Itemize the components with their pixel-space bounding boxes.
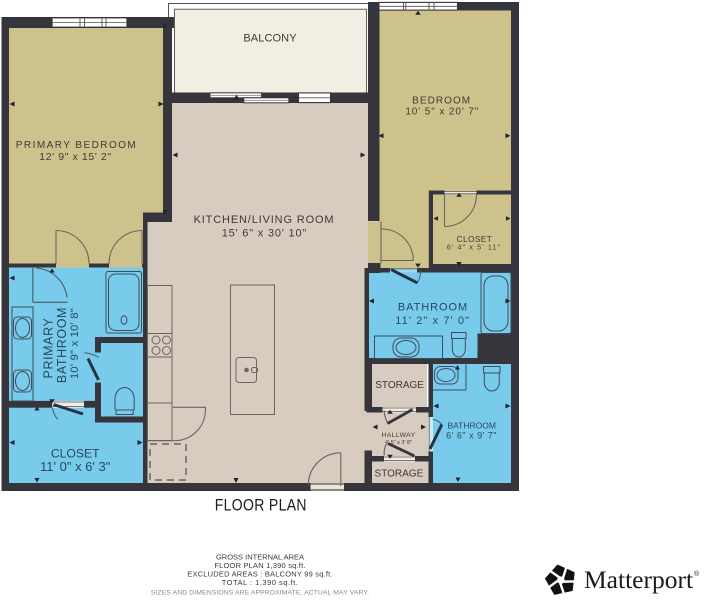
- svg-text:HALLWAY: HALLWAY: [381, 432, 415, 439]
- svg-text:BATHROOM: BATHROOM: [55, 307, 69, 383]
- svg-text:®: ®: [694, 570, 700, 578]
- svg-text:11' 0" x 6' 3": 11' 0" x 6' 3": [40, 459, 111, 474]
- svg-text:PRIMARY: PRIMARY: [42, 317, 56, 378]
- svg-text:6' 4" x 5' 11": 6' 4" x 5' 11": [447, 242, 501, 251]
- svg-text:PRIMARY BEDROOM: PRIMARY BEDROOM: [16, 140, 137, 151]
- svg-text:TOTAL : 1,390 sq.ft.: TOTAL : 1,390 sq.ft.: [222, 578, 299, 587]
- svg-text:10' 5" x 20' 7": 10' 5" x 20' 7": [405, 107, 479, 118]
- svg-text:STORAGE: STORAGE: [375, 469, 424, 480]
- svg-text:STORAGE: STORAGE: [375, 380, 424, 391]
- svg-text:BALCONY: BALCONY: [243, 33, 297, 45]
- svg-text:12' 9" x 15' 2": 12' 9" x 15' 2": [39, 151, 111, 163]
- svg-text:SIZES AND DIMENSIONS ARE APPRO: SIZES AND DIMENSIONS ARE APPROXIMATE, AC…: [151, 589, 369, 596]
- svg-text:Matterport: Matterport: [584, 565, 693, 594]
- svg-text:FLOOR PLAN: FLOOR PLAN: [215, 497, 307, 515]
- svg-text:BATHROOM: BATHROOM: [447, 421, 495, 431]
- svg-text:KITCHEN/LIVING ROOM: KITCHEN/LIVING ROOM: [194, 214, 335, 226]
- svg-text:15' 6" x 30' 10": 15' 6" x 30' 10": [222, 227, 307, 239]
- svg-text:11' 2" x 7' 0": 11' 2" x 7' 0": [395, 315, 470, 327]
- svg-text:6' 6" x 9' 7": 6' 6" x 9' 7": [446, 430, 497, 440]
- svg-text:4' 5" x 3' 8": 4' 5" x 3' 8": [385, 440, 412, 446]
- svg-text:10' 9" x 10' 8": 10' 9" x 10' 8": [69, 308, 81, 379]
- svg-text:BATHROOM: BATHROOM: [398, 302, 468, 314]
- svg-text:BEDROOM: BEDROOM: [412, 95, 471, 106]
